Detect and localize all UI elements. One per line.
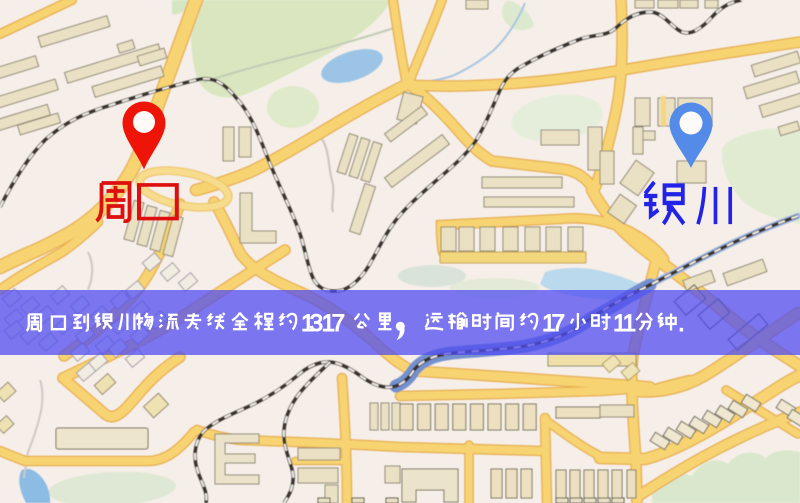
svg-text:7: 7 bbox=[332, 310, 346, 337]
svg-text:1: 1 bbox=[623, 310, 637, 337]
svg-text:.: . bbox=[678, 310, 685, 337]
svg-text:7: 7 bbox=[552, 310, 566, 337]
